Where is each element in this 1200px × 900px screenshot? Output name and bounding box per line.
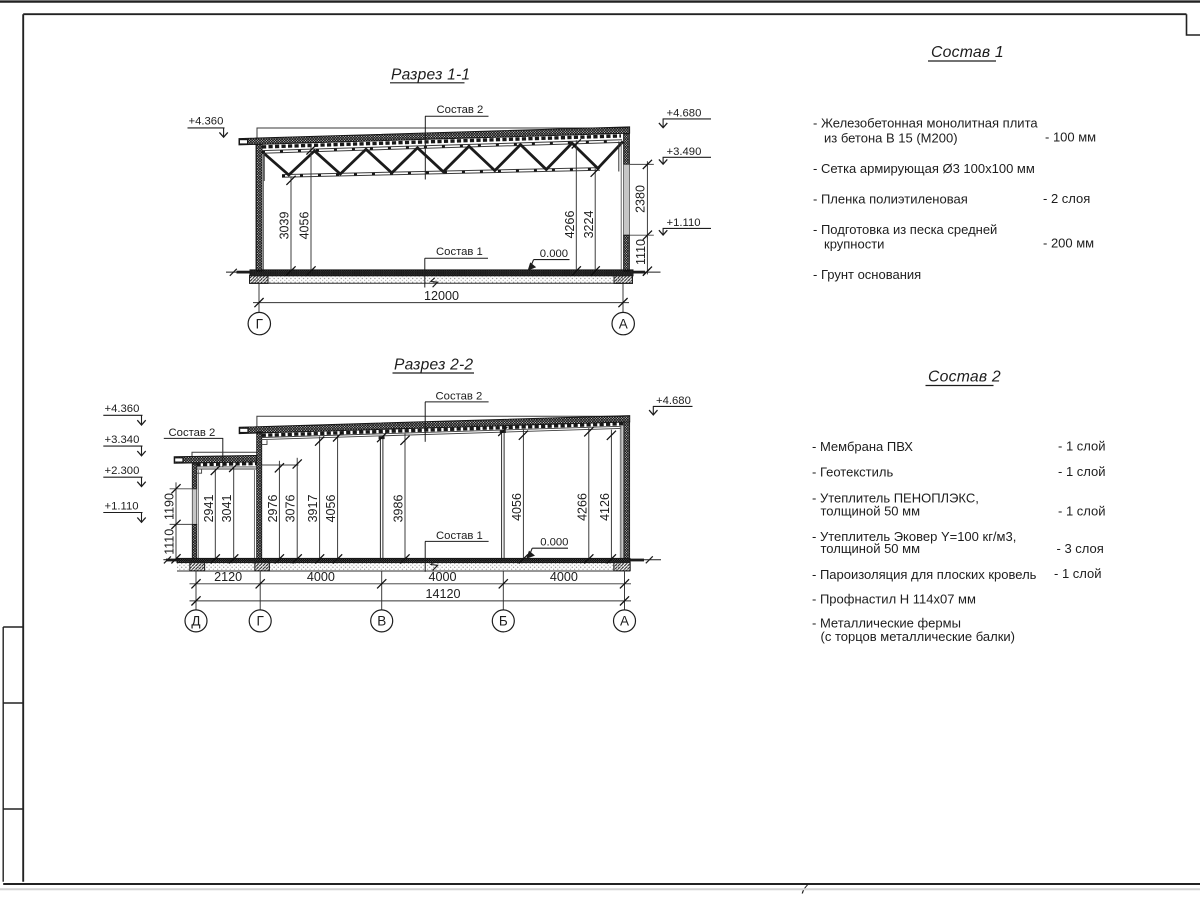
svg-text:В: В bbox=[377, 614, 386, 629]
svg-text:3224: 3224 bbox=[582, 211, 596, 239]
svg-text:Д: Д bbox=[191, 614, 200, 629]
svg-text:2941: 2941 bbox=[202, 495, 216, 523]
svg-text:- Геотекстиль: - Геотекстиль bbox=[812, 465, 893, 480]
svg-text:2976: 2976 bbox=[266, 495, 280, 523]
svg-text:3041: 3041 bbox=[220, 495, 234, 523]
svg-text:+4.360: +4.360 bbox=[105, 403, 140, 415]
svg-text:Б: Б bbox=[499, 614, 508, 629]
svg-text:- 1 слой: - 1 слой bbox=[1058, 464, 1106, 479]
svg-text:1110: 1110 bbox=[163, 529, 177, 555]
svg-text:+4.680: +4.680 bbox=[667, 108, 702, 120]
svg-text:- Железобетонная монолитная п: - Железобетонная монолитная плита bbox=[813, 116, 1038, 131]
svg-text:толщиной 50 мм: толщиной 50 мм bbox=[821, 504, 921, 519]
svg-text:Состав 1: Состав 1 bbox=[931, 44, 1004, 61]
svg-text:Состав 1: Состав 1 bbox=[436, 246, 483, 258]
svg-text:3039: 3039 bbox=[277, 212, 291, 240]
svg-text:2120: 2120 bbox=[214, 570, 242, 584]
svg-text:- 100 мм: - 100 мм bbox=[1045, 130, 1096, 145]
svg-text:- 2 слоя: - 2 слоя bbox=[1043, 191, 1090, 206]
svg-text:Г: Г bbox=[256, 316, 264, 331]
svg-text:+3.340: +3.340 bbox=[105, 434, 140, 446]
svg-text:- 200 мм: - 200 мм bbox=[1043, 236, 1094, 251]
svg-text:4056: 4056 bbox=[324, 495, 338, 523]
svg-text:1110: 1110 bbox=[634, 239, 648, 265]
svg-text:А: А bbox=[619, 316, 628, 331]
svg-text:- Сетка армирующая Ø3 100х100: - Сетка армирующая Ø3 100х100 мм bbox=[813, 161, 1035, 176]
svg-text:Состав 2: Состав 2 bbox=[437, 104, 484, 116]
svg-text:1190: 1190 bbox=[163, 493, 177, 520]
svg-text:12000: 12000 bbox=[424, 289, 459, 303]
svg-text:- Мембрана ПВХ: - Мембрана ПВХ bbox=[812, 439, 913, 454]
svg-text:крупности: крупности bbox=[824, 237, 884, 252]
svg-text:+3.490: +3.490 bbox=[667, 146, 702, 158]
svg-text:+4.680: +4.680 bbox=[656, 395, 691, 407]
svg-text:Состав 2: Состав 2 bbox=[169, 427, 216, 439]
svg-text:толщиной 50 мм: толщиной 50 мм bbox=[821, 541, 921, 556]
svg-text:+1.110: +1.110 bbox=[105, 501, 139, 513]
svg-text:из бетона В 15 (М200): из бетона В 15 (М200) bbox=[824, 131, 958, 146]
svg-text:4056: 4056 bbox=[510, 493, 524, 521]
svg-text:4266: 4266 bbox=[575, 493, 589, 521]
svg-text:+1.110: +1.110 bbox=[667, 217, 701, 229]
svg-text:Разрез 2-2: Разрез 2-2 bbox=[394, 357, 473, 374]
svg-text:4126: 4126 bbox=[598, 493, 612, 521]
svg-text:А: А bbox=[620, 614, 629, 629]
svg-text:14120: 14120 bbox=[425, 587, 460, 601]
svg-text:3076: 3076 bbox=[284, 495, 298, 523]
svg-text:Разрез 1-1: Разрез 1-1 bbox=[391, 67, 470, 84]
svg-text:Состав 2: Состав 2 bbox=[928, 369, 1001, 386]
svg-text:4056: 4056 bbox=[297, 212, 311, 240]
svg-text:3986: 3986 bbox=[392, 495, 406, 523]
svg-text:- Грунт основания: - Грунт основания bbox=[813, 267, 921, 282]
svg-text:2380: 2380 bbox=[634, 185, 648, 213]
svg-text:0.000: 0.000 bbox=[540, 536, 568, 548]
svg-text:4000: 4000 bbox=[428, 570, 456, 584]
svg-text:- Пленка полиэтиленовая: - Пленка полиэтиленовая bbox=[813, 192, 968, 207]
svg-text:4266: 4266 bbox=[563, 211, 577, 239]
svg-text:- Профнастил Н 114х07 мм: - Профнастил Н 114х07 мм bbox=[812, 592, 976, 607]
svg-text:4000: 4000 bbox=[550, 570, 578, 584]
svg-text:- 1 слой: - 1 слой bbox=[1054, 566, 1102, 581]
svg-text:- Пароизоляция для плоских кро: - Пароизоляция для плоских кровель bbox=[812, 567, 1037, 582]
svg-text:+2.300: +2.300 bbox=[105, 465, 140, 477]
svg-text:3917: 3917 bbox=[306, 495, 320, 523]
svg-text:- 3 слоя: - 3 слоя bbox=[1057, 541, 1104, 556]
svg-text:Состав 1: Состав 1 bbox=[436, 530, 483, 542]
svg-text:0.000: 0.000 bbox=[540, 248, 568, 260]
svg-text:- Подготовка из песка средней: - Подготовка из песка средней bbox=[813, 222, 997, 237]
svg-text:- 1 слой: - 1 слой bbox=[1058, 504, 1106, 519]
svg-text:4000: 4000 bbox=[307, 570, 335, 584]
svg-text:Г: Г bbox=[257, 614, 265, 629]
svg-text:- 1 слой: - 1 слой bbox=[1058, 438, 1106, 453]
svg-text:+4.360: +4.360 bbox=[189, 116, 224, 128]
svg-text:Состав 2: Состав 2 bbox=[436, 390, 483, 402]
svg-text:(с торцов металлические балки): (с торцов металлические балки) bbox=[821, 629, 1016, 644]
